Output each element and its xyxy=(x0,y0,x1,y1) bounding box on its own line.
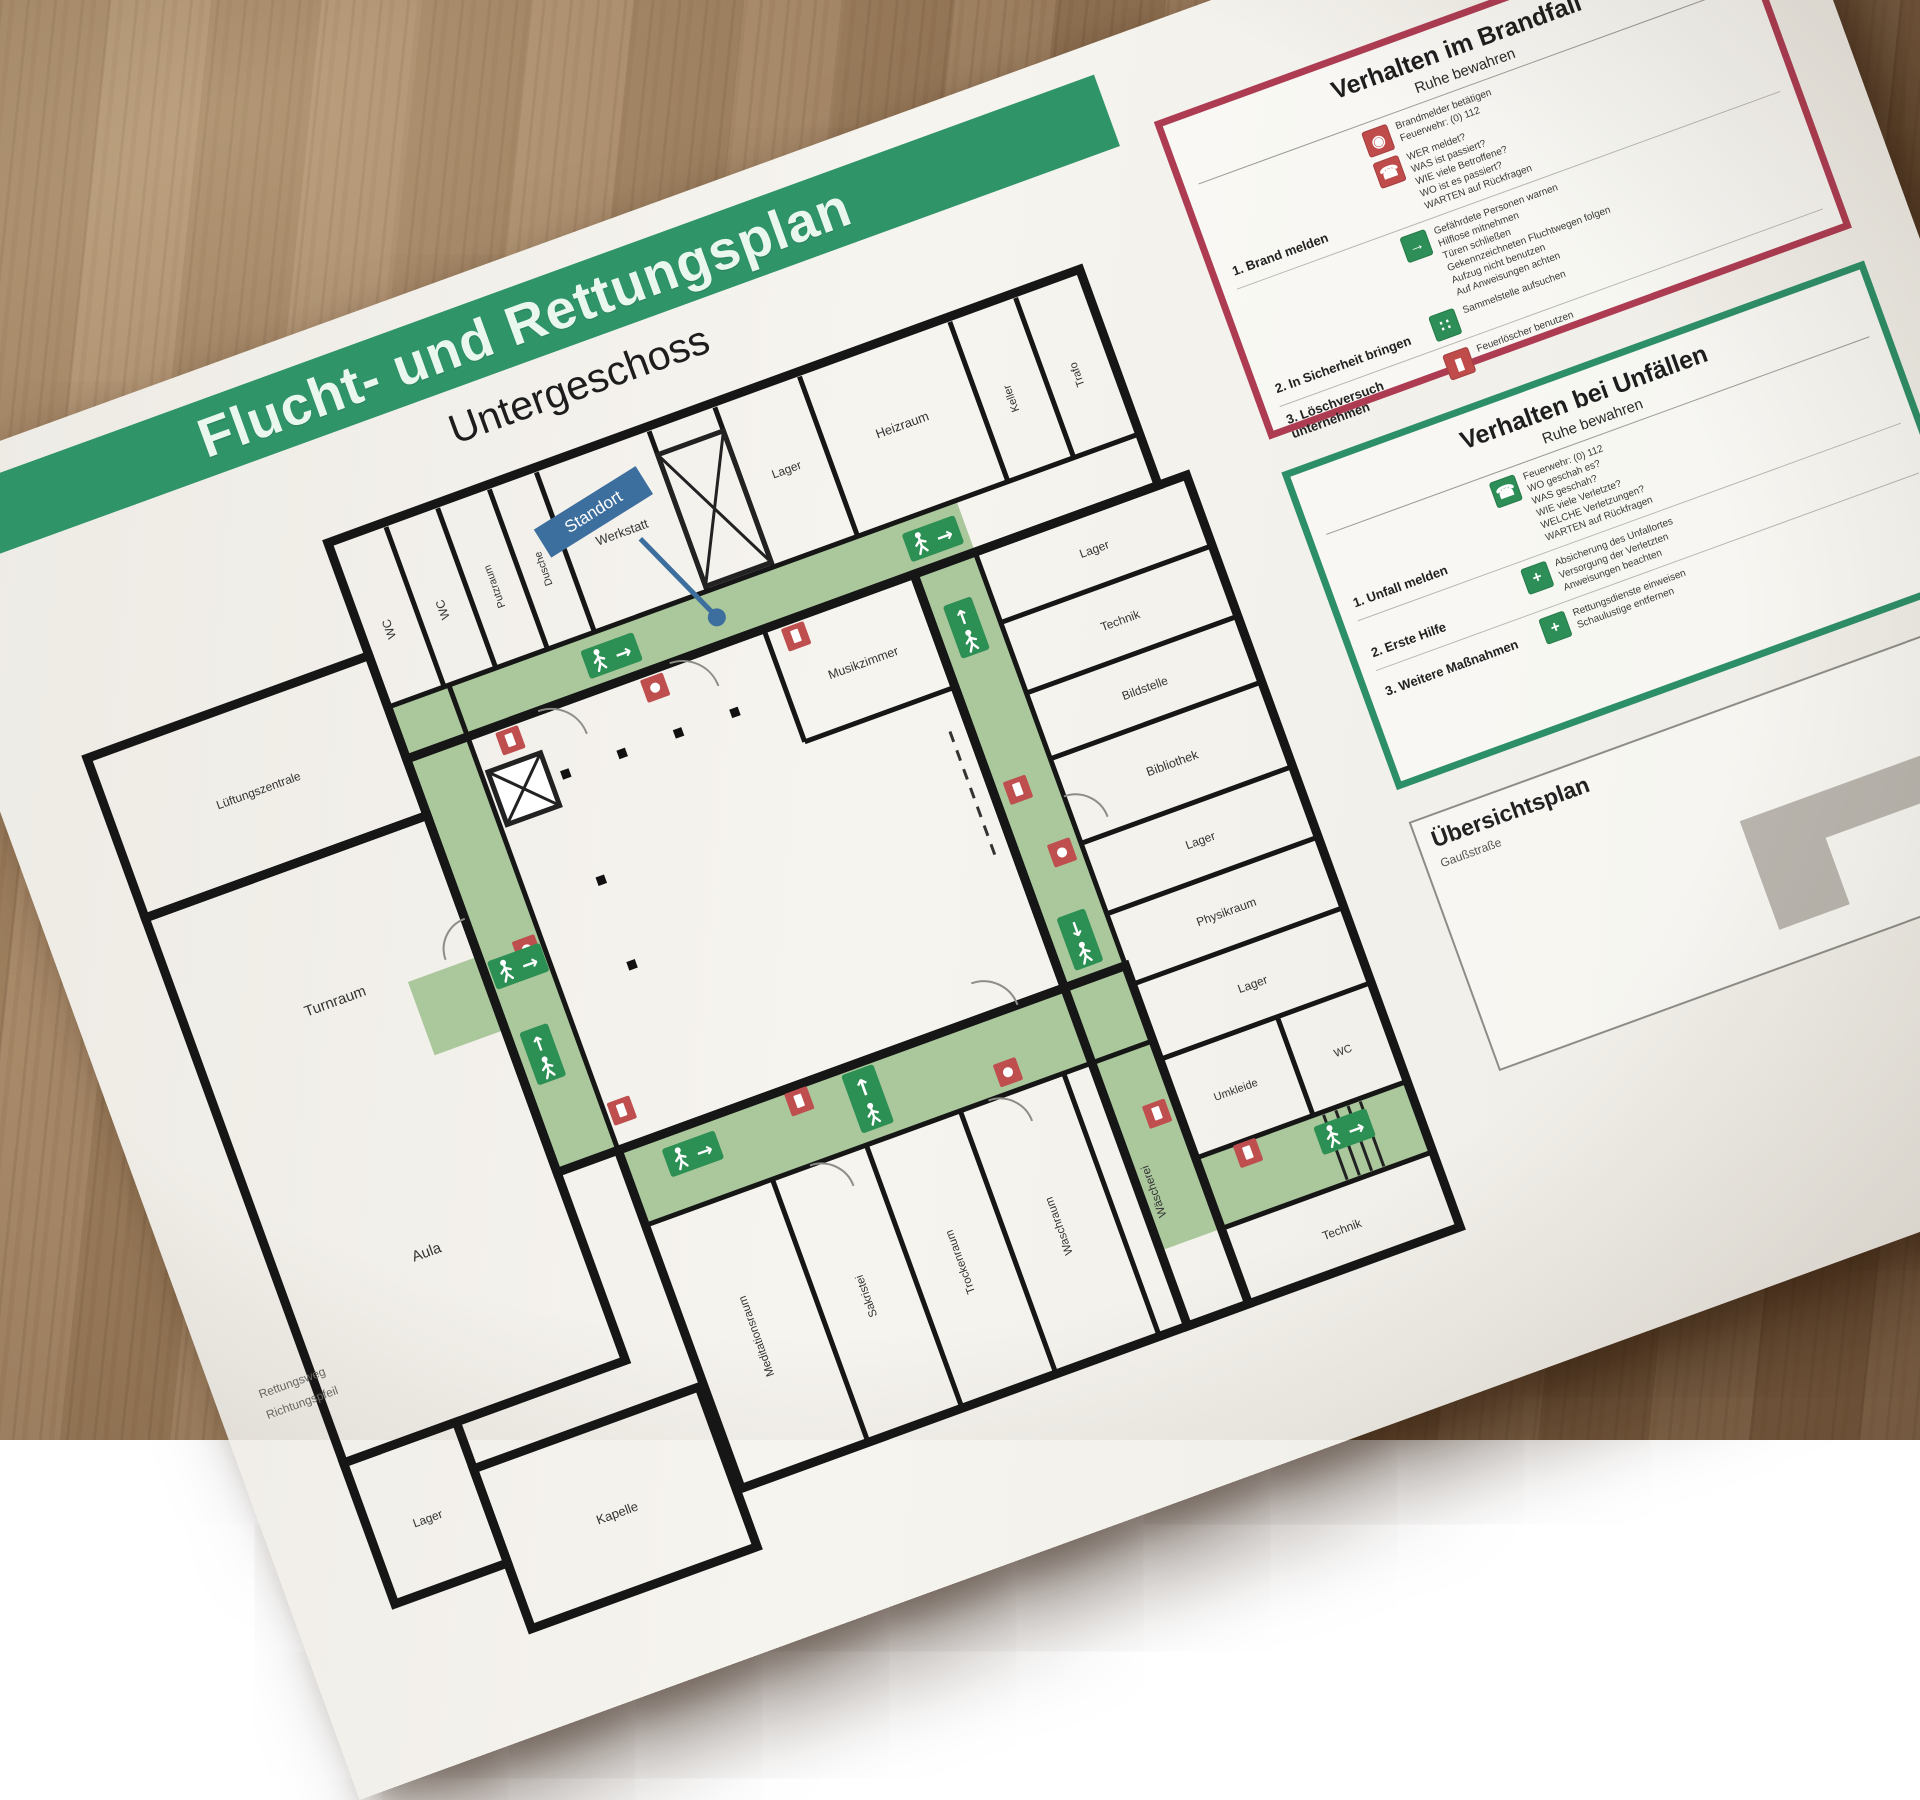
room-label: WC xyxy=(379,617,399,641)
room-label: Trockenraum xyxy=(944,1228,978,1295)
room-label: Technik xyxy=(1320,1216,1364,1243)
room-label: Lager xyxy=(411,1507,445,1531)
room-label: Meditationsraum xyxy=(737,1294,777,1378)
room-label: Bibliothek xyxy=(1144,747,1200,779)
room-label: Physikraum xyxy=(1194,895,1258,930)
room-label: Aula xyxy=(410,1239,445,1265)
emergency-phone-icon: ☎ xyxy=(1489,474,1524,509)
room-label: Waschraum xyxy=(1044,1195,1076,1256)
fire-alarm-icon: ◉ xyxy=(1361,124,1396,159)
room-label: Bildstelle xyxy=(1120,673,1170,703)
room-label: Keller xyxy=(1001,383,1022,414)
stairs xyxy=(406,305,1384,1409)
room-label: Musikzimmer xyxy=(826,644,900,682)
room-label: Lager xyxy=(1077,537,1111,561)
escape-route-icon: → xyxy=(1399,229,1434,264)
room-label: Trafo xyxy=(1068,360,1088,388)
room-label: Lüftungszentrale xyxy=(214,769,302,813)
room-label: Lager xyxy=(770,458,804,482)
room-label: Kapelle xyxy=(594,1498,640,1527)
room-label: WC xyxy=(433,598,453,622)
room-label: Heizraum xyxy=(873,408,930,441)
room-label: Putzraum xyxy=(481,563,508,610)
building-footprint xyxy=(1740,732,1920,930)
columns xyxy=(557,707,810,971)
room-label: Technik xyxy=(1099,607,1143,634)
room-label: Umkleide xyxy=(1212,1077,1259,1104)
room-label: WC xyxy=(1332,1043,1353,1061)
escape-plan-sheet: Flucht- und Rettungsplan Untergeschoss xyxy=(0,0,1920,1800)
room-label: Lager xyxy=(1236,972,1270,996)
room-label: Lager xyxy=(1183,829,1217,853)
outer-walls xyxy=(46,259,1481,1670)
emergency-phone-icon: ☎ xyxy=(1372,155,1407,190)
room-label: Sakristei xyxy=(854,1273,880,1319)
room-label: Turnraum xyxy=(302,983,368,1021)
desk-surface: Flucht- und Rettungsplan Untergeschoss xyxy=(0,0,1920,1440)
